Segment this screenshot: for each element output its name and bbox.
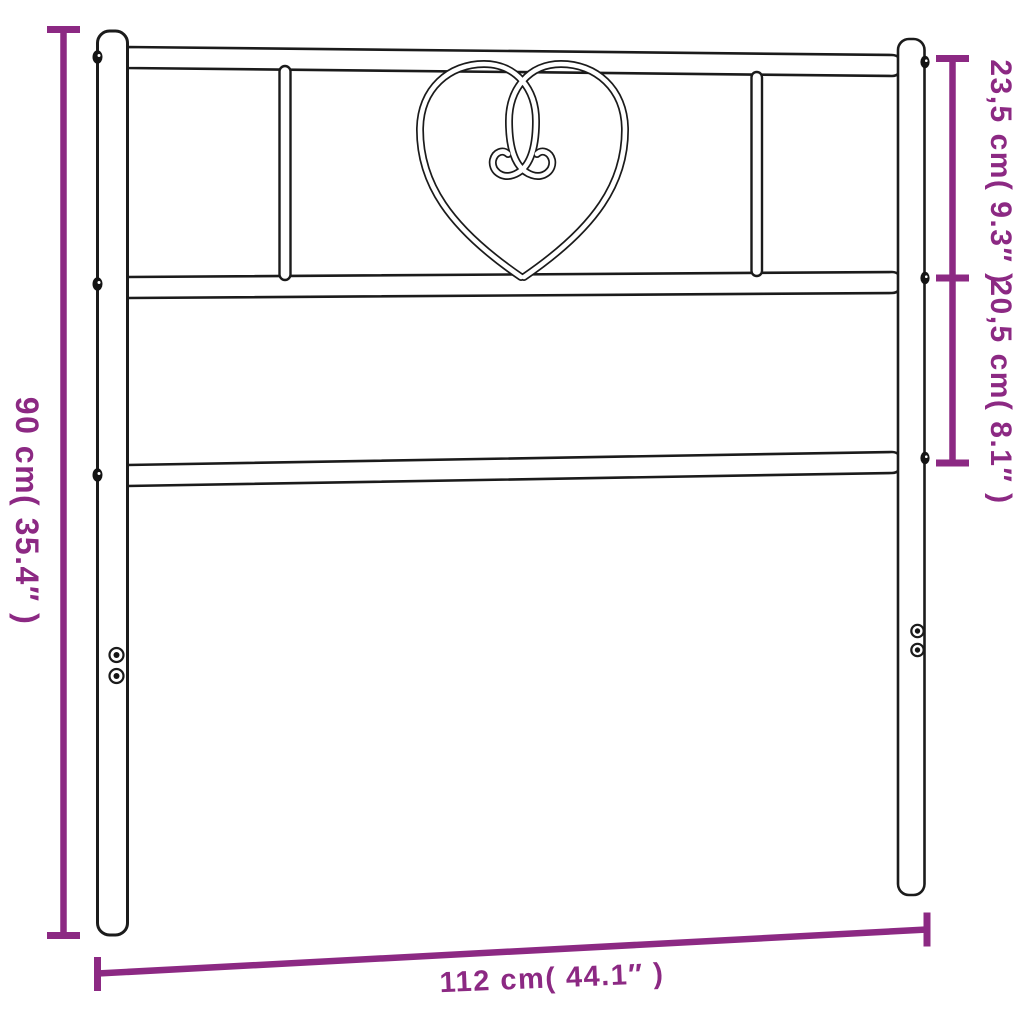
screw-icon (920, 56, 929, 68)
screw-icon (93, 277, 103, 291)
screw-icon (920, 272, 929, 284)
height-dimension-line (47, 30, 80, 936)
rail-bottom (127, 452, 903, 486)
heart-scroll-icon (420, 64, 625, 277)
middle-section-dimension-label: 20,5 cm( 8.1″ ) (985, 279, 1015, 504)
headboard-dimension-diagram: 90 cm( 35.4″ ) 23,5 cm( 9.3″ ) 20,5 cm( … (0, 0, 1024, 1024)
screw-icon (93, 50, 103, 64)
section-dimension-line (936, 58, 969, 463)
post-left (98, 31, 128, 935)
connector-bar-left (280, 66, 291, 280)
screw-icon (93, 468, 103, 482)
mounting-holes (110, 625, 924, 683)
screw-icon (920, 452, 929, 464)
post-right (898, 39, 925, 895)
headboard-drawing (0, 0, 1024, 1024)
height-dimension-label: 90 cm( 35.4″ ) (11, 397, 43, 625)
connector-bar-right (752, 72, 763, 276)
top-section-dimension-label: 23,5 cm( 9.3″ ) (985, 59, 1015, 284)
